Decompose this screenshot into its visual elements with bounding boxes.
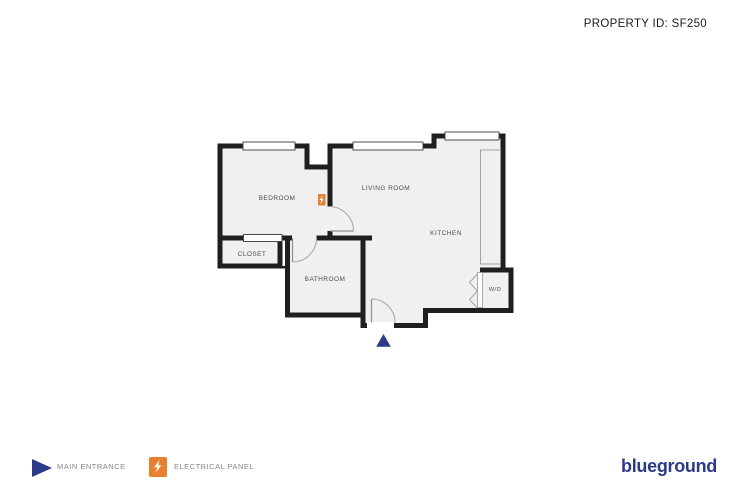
electrical-panel-legend-label: ELECTRICAL PANEL	[174, 462, 254, 472]
brand-logo: blueground	[621, 456, 717, 477]
closet-label: CLOSET	[238, 251, 267, 258]
bedroom-door-opening	[328, 207, 333, 232]
kitchen-counter	[481, 150, 501, 264]
electrical-panel-icon	[318, 194, 326, 206]
washer-dryer-door-track	[478, 273, 483, 308]
bathroom-door-opening	[292, 235, 317, 242]
living-room-window	[353, 142, 423, 150]
bathroom-label: BATHROOM	[305, 276, 346, 283]
entrance-door-opening	[367, 322, 394, 329]
kitchen-label: KITCHEN	[430, 230, 462, 237]
main-entrance-marker-icon	[376, 334, 391, 347]
floor-plan: BEDROOM LIVING ROOM KITCHEN CLOSET BATHR…	[0, 0, 736, 491]
main-entrance-icon	[32, 459, 52, 477]
floorplan-page: PROPERTY ID: SF250	[0, 0, 736, 491]
main-entrance-legend-label: MAIN ENTRANCE	[57, 462, 126, 472]
wall-void	[283, 241, 286, 267]
electrical-panel-legend-icon	[149, 457, 167, 477]
bedroom-window	[243, 142, 295, 150]
lightning-bolt-icon	[151, 459, 165, 475]
bedroom-label: BEDROOM	[259, 195, 296, 202]
kitchen-window	[445, 132, 499, 140]
closet-sliding-door	[244, 235, 283, 242]
living-room-label: LIVING ROOM	[362, 185, 410, 192]
washer-dryer-label: W/D	[489, 287, 502, 293]
